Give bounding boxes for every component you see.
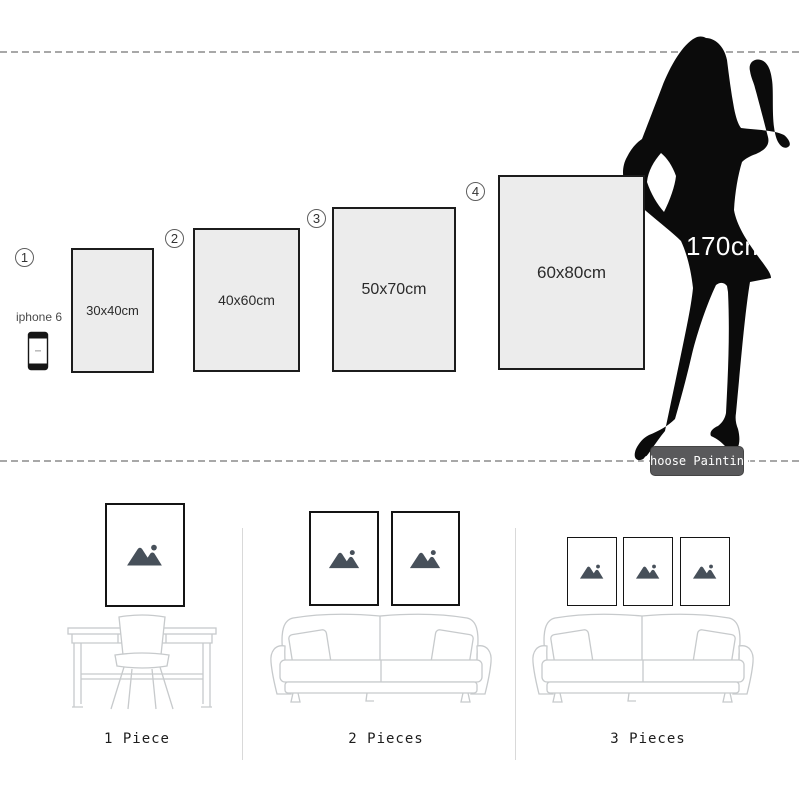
scene1-frame <box>105 503 185 607</box>
iphone-icon <box>27 331 49 371</box>
size-number-2: 2 <box>165 229 184 248</box>
size-number-4: 4 <box>466 182 485 201</box>
size-frame-label: 60x80cm <box>537 263 606 283</box>
person-height-label: 170cm <box>686 231 762 262</box>
image-placeholder-icon <box>126 542 164 568</box>
scene3-frame-1 <box>567 537 617 606</box>
image-placeholder-icon <box>579 563 605 580</box>
choose-painting-button[interactable]: Choose Painting <box>650 446 744 476</box>
iphone-label: iphone 6 <box>13 310 65 324</box>
sofa-illustration <box>528 610 758 706</box>
image-placeholder-icon <box>328 548 361 570</box>
scene3-label: 3 Pieces <box>568 731 728 747</box>
scene2-label: 2 Pieces <box>306 731 466 747</box>
image-placeholder-icon <box>635 563 661 580</box>
scene2-frame-2 <box>391 511 460 606</box>
desk-chair-illustration <box>62 614 222 714</box>
image-placeholder-icon <box>692 563 718 580</box>
size-frame-30x40: 30x40cm <box>71 248 154 373</box>
sofa-illustration <box>266 610 496 706</box>
size-frame-50x70: 50x70cm <box>332 207 456 372</box>
scene2-frame-1 <box>309 511 379 606</box>
size-frame-label: 30x40cm <box>86 303 139 318</box>
wall-art-size-guide: 170cm 1 2 3 4 30x40cm 40x60cm 50x70cm 60… <box>0 0 800 800</box>
size-frame-60x80: 60x80cm <box>498 175 645 370</box>
scene-divider-1 <box>242 528 243 760</box>
scene-divider-2 <box>515 528 516 760</box>
size-number-3: 3 <box>307 209 326 228</box>
image-placeholder-icon <box>409 548 442 570</box>
size-frame-label: 40x60cm <box>218 292 275 308</box>
size-number-1: 1 <box>15 248 34 267</box>
scene3-frame-3 <box>680 537 730 606</box>
size-frame-label: 50x70cm <box>362 281 427 299</box>
scene3-frame-2 <box>623 537 673 606</box>
size-frame-40x60: 40x60cm <box>193 228 300 372</box>
scene1-label: 1 Piece <box>57 731 217 747</box>
